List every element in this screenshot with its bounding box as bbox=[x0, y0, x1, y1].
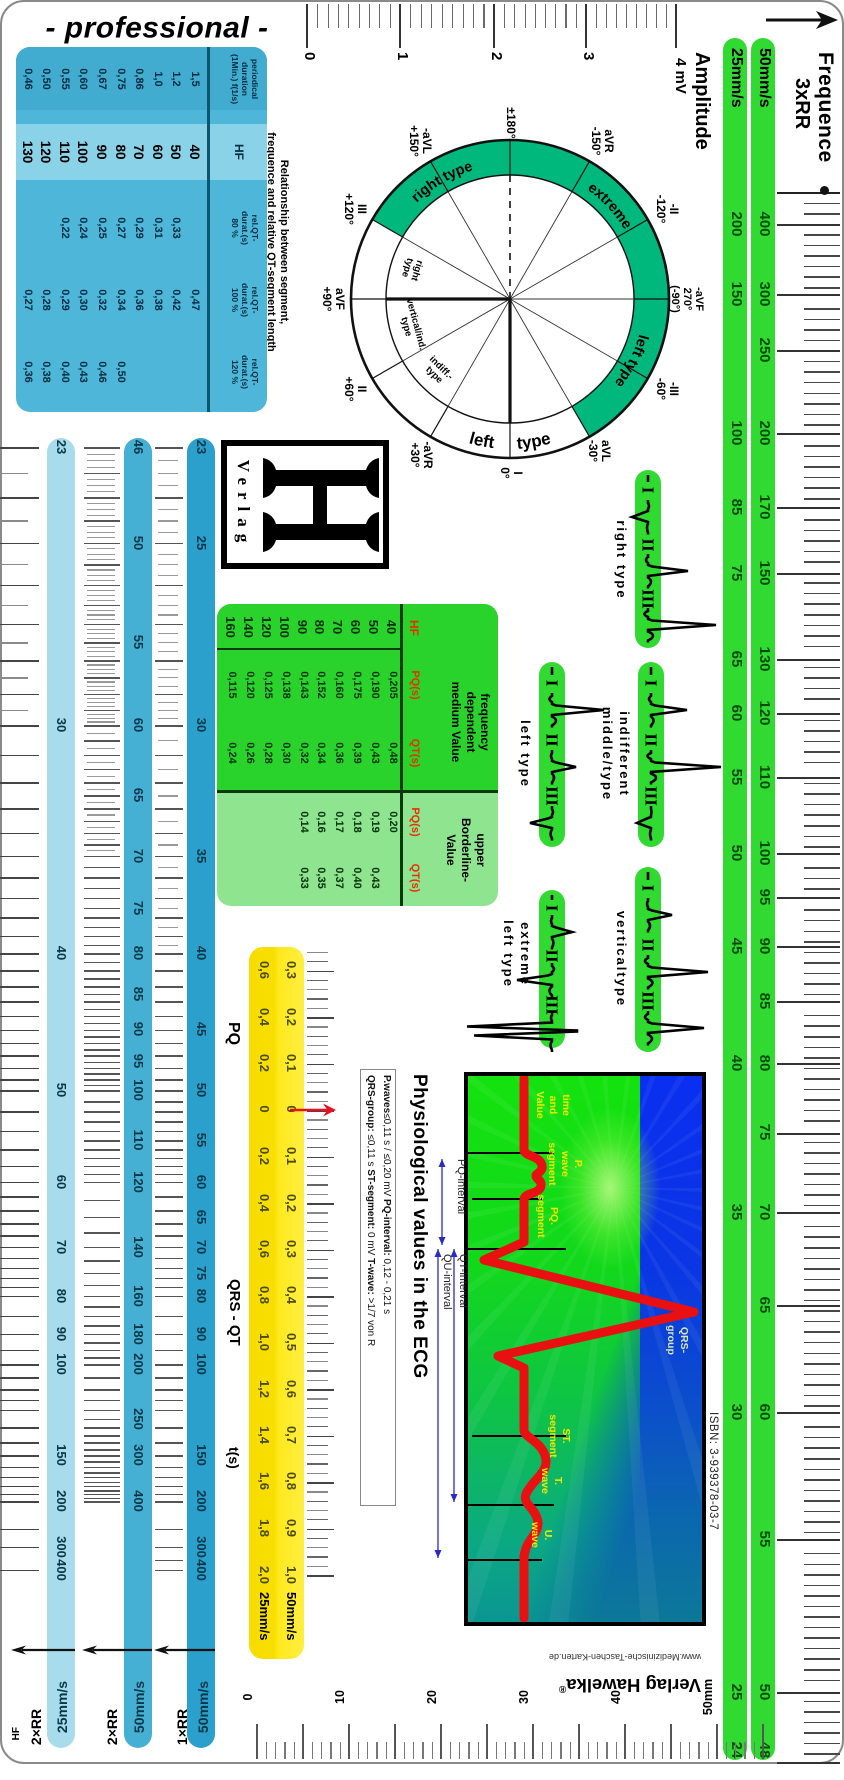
svg-text:vertical/ind.type: vertical/ind.type bbox=[394, 297, 428, 353]
svg-text:II: II bbox=[639, 538, 658, 552]
svg-text:I: I bbox=[543, 680, 562, 687]
svg-text:II: II bbox=[543, 733, 562, 747]
svg-text:III: III bbox=[639, 589, 658, 609]
svg-text:III: III bbox=[543, 786, 562, 806]
svg-text:indiff.-type: indiff.-type bbox=[420, 354, 455, 389]
svg-text:I: I bbox=[639, 487, 658, 494]
svg-text:I: I bbox=[543, 905, 562, 912]
svg-text:II: II bbox=[543, 949, 562, 963]
svg-text:righttype: righttype bbox=[399, 256, 425, 283]
